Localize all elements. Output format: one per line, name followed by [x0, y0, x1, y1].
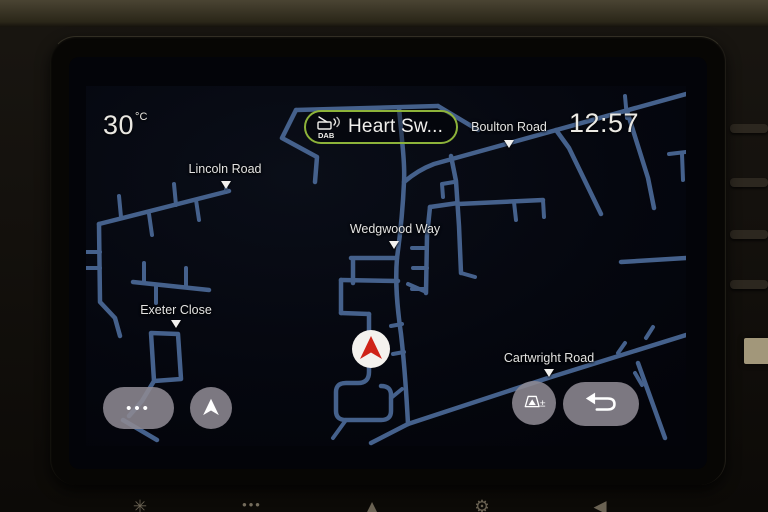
map-options-button[interactable]: •••	[103, 387, 174, 429]
road-label-pointer	[171, 320, 181, 328]
climate-icon[interactable]: ✳	[133, 497, 147, 512]
radio-station-name: Heart Sw...	[348, 116, 443, 138]
air-vent	[724, 104, 768, 394]
back-arrow-icon	[569, 382, 633, 426]
back-button[interactable]	[563, 382, 639, 426]
vent-slat	[730, 124, 768, 133]
vent-accent	[744, 338, 768, 364]
temperature-value: 30	[103, 110, 134, 141]
settings-icon[interactable]: ⚙	[474, 497, 489, 512]
road-label: Wedgwood Way	[350, 222, 440, 236]
road-label-pointer	[221, 181, 231, 189]
dashboard-top-trim	[0, 0, 768, 27]
auto-zoom-icon: ±	[518, 381, 550, 425]
road-label-pointer	[389, 241, 399, 249]
screen: Lincoln Road Boulton Road Wedgwood Way E…	[69, 57, 707, 469]
volume-icon[interactable]: ◀	[593, 497, 606, 512]
hardkey-bar: ✳ ••• ▲ ⚙ ◀	[0, 494, 768, 512]
svg-text:±: ±	[540, 399, 546, 410]
road-label: Lincoln Road	[189, 162, 262, 176]
infotainment-bezel: Lincoln Road Boulton Road Wedgwood Way E…	[50, 36, 726, 485]
navigation-map[interactable]: Lincoln Road Boulton Road Wedgwood Way E…	[86, 86, 686, 446]
vent-slat	[730, 230, 768, 239]
temperature-readout: 30 °C	[103, 110, 147, 141]
auto-zoom-button[interactable]: ±	[512, 381, 556, 425]
vent-slat	[730, 280, 768, 289]
menu-icon[interactable]: •••	[242, 497, 262, 512]
temperature-unit: °C	[135, 111, 147, 123]
road-label-pointer	[544, 369, 554, 377]
current-position-marker	[352, 330, 390, 368]
dashboard-photo: Lincoln Road Boulton Road Wedgwood Way E…	[0, 0, 768, 512]
dab-radio-icon: DAB	[315, 115, 341, 139]
ellipsis-icon: •••	[126, 401, 151, 416]
road-label: Exeter Close	[140, 303, 212, 317]
navigation-arrow-icon	[196, 387, 226, 429]
road-label: Cartwright Road	[504, 351, 594, 365]
road-label: Boulton Road	[471, 120, 547, 134]
road-label-pointer	[504, 140, 514, 148]
vent-slat	[730, 178, 768, 187]
nav-icon[interactable]: ▲	[364, 497, 381, 512]
recenter-compass-button[interactable]	[190, 387, 232, 429]
clock: 12:57	[569, 108, 639, 139]
svg-text:DAB: DAB	[318, 131, 335, 139]
radio-station-badge[interactable]: DAB Heart Sw...	[304, 110, 458, 144]
